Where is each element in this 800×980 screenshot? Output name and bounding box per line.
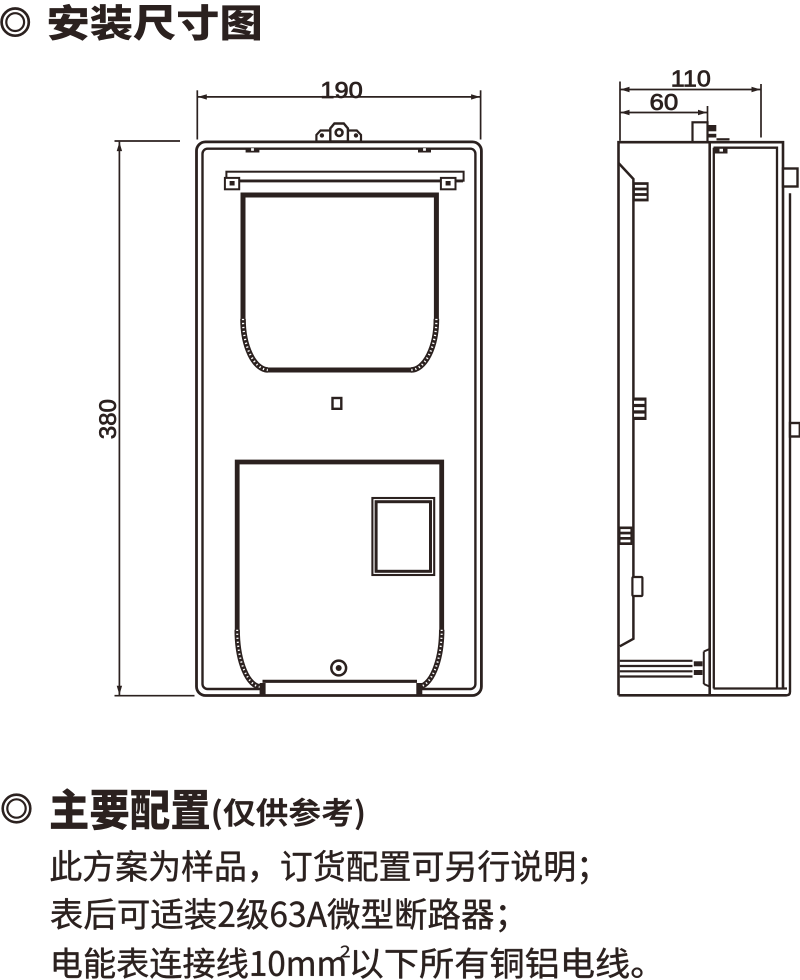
svg-text:190: 190	[320, 77, 363, 103]
svg-text:380: 380	[95, 399, 122, 439]
svg-text:110: 110	[671, 66, 711, 92]
svg-text:60: 60	[650, 89, 679, 115]
